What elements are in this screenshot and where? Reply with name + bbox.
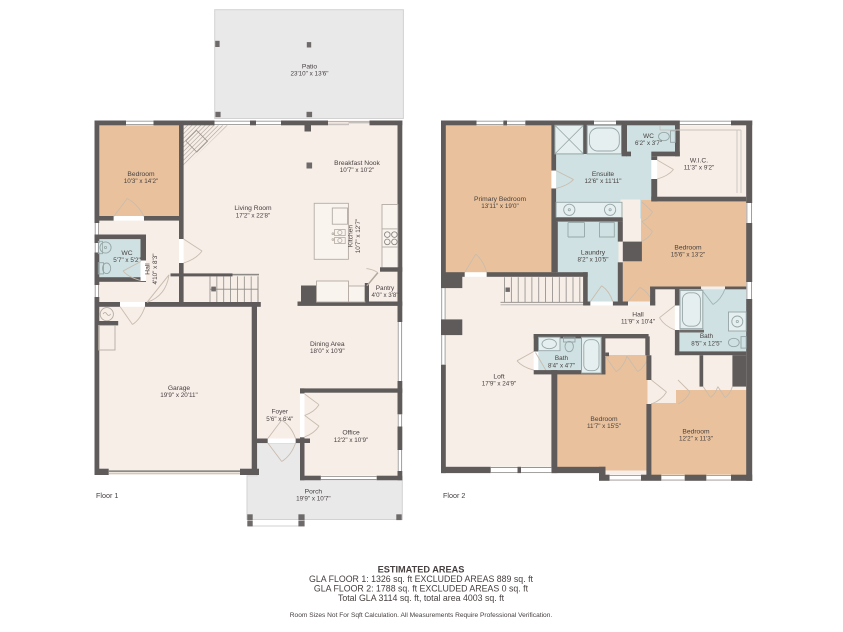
svg-text:Patio: Patio bbox=[302, 63, 318, 70]
svg-text:Dining Area: Dining Area bbox=[310, 341, 345, 348]
svg-text:Bedroom: Bedroom bbox=[590, 416, 618, 423]
svg-text:GLA FLOOR 2: 1788 sq. ft EXCLU: GLA FLOOR 2: 1788 sq. ft EXCLUDED AREAS … bbox=[314, 583, 529, 593]
svg-text:Total GLA 3114 sq. ft, total a: Total GLA 3114 sq. ft, total area 4003 s… bbox=[338, 593, 505, 603]
svg-text:Kitchen: Kitchen bbox=[348, 225, 355, 248]
svg-text:10'7" x 12'7": 10'7" x 12'7" bbox=[355, 219, 362, 254]
svg-text:Bedroom: Bedroom bbox=[674, 244, 702, 251]
svg-text:Foyer: Foyer bbox=[272, 409, 289, 416]
svg-text:11'3" x 9'2": 11'3" x 9'2" bbox=[684, 165, 715, 172]
svg-text:4'10" x 8'3": 4'10" x 8'3" bbox=[152, 253, 159, 284]
svg-text:WC: WC bbox=[643, 133, 654, 140]
svg-text:Living Room: Living Room bbox=[234, 205, 272, 212]
svg-text:12'2" x 10'9": 12'2" x 10'9" bbox=[334, 437, 369, 444]
svg-text:Office: Office bbox=[342, 430, 360, 437]
svg-text:Floor 1: Floor 1 bbox=[96, 491, 118, 500]
svg-text:11'7" x 15'5": 11'7" x 15'5" bbox=[587, 423, 621, 430]
svg-text:5'7" x 5'2": 5'7" x 5'2" bbox=[113, 257, 141, 264]
svg-text:Hall: Hall bbox=[145, 263, 152, 275]
svg-text:8'4" x 4'7": 8'4" x 4'7" bbox=[548, 363, 575, 370]
svg-text:Floor 2: Floor 2 bbox=[443, 491, 465, 500]
svg-text:Ensuite: Ensuite bbox=[592, 171, 615, 178]
svg-text:18'0" x 10'9": 18'0" x 10'9" bbox=[310, 348, 345, 355]
svg-text:8'5" x 12'5": 8'5" x 12'5" bbox=[691, 341, 722, 348]
svg-text:8'2" x 10'5": 8'2" x 10'5" bbox=[577, 257, 608, 264]
svg-text:WC: WC bbox=[121, 250, 132, 257]
svg-text:Hall: Hall bbox=[632, 311, 644, 318]
svg-text:Bedroom: Bedroom bbox=[127, 171, 155, 178]
svg-text:Breakfast Nook: Breakfast Nook bbox=[334, 160, 380, 167]
svg-text:13'11" x 19'0": 13'11" x 19'0" bbox=[481, 203, 519, 210]
svg-text:5'6" x 6'4": 5'6" x 6'4" bbox=[266, 416, 293, 423]
svg-text:23'10" x 13'6": 23'10" x 13'6" bbox=[290, 71, 328, 78]
svg-text:Bath: Bath bbox=[555, 355, 569, 362]
svg-text:W.I.C.: W.I.C. bbox=[690, 157, 708, 164]
svg-text:15'6" x 13'2": 15'6" x 13'2" bbox=[671, 252, 706, 259]
svg-text:4'0" x 3'8": 4'0" x 3'8" bbox=[371, 292, 398, 299]
svg-text:Pantry: Pantry bbox=[376, 285, 395, 292]
svg-text:17'2" x 22'8": 17'2" x 22'8" bbox=[236, 212, 271, 219]
svg-text:Porch: Porch bbox=[305, 488, 323, 495]
svg-text:12'2" x 11'3": 12'2" x 11'3" bbox=[679, 436, 713, 443]
svg-text:Bedroom: Bedroom bbox=[682, 428, 710, 435]
svg-text:Loft: Loft bbox=[493, 373, 504, 380]
svg-text:Laundry: Laundry bbox=[581, 249, 606, 256]
svg-text:19'9" x 10'7": 19'9" x 10'7" bbox=[296, 496, 331, 503]
svg-text:Garage: Garage bbox=[168, 385, 191, 392]
svg-text:12'6" x 11'11": 12'6" x 11'11" bbox=[584, 178, 621, 185]
svg-text:19'9" x 20'11": 19'9" x 20'11" bbox=[160, 392, 198, 399]
svg-text:Primary Bedroom: Primary Bedroom bbox=[474, 196, 526, 203]
svg-text:Room Sizes Not For Sqft Calcul: Room Sizes Not For Sqft Calculation. All… bbox=[290, 612, 553, 619]
svg-text:17'9" x 24'9": 17'9" x 24'9" bbox=[482, 381, 517, 388]
svg-text:Bath: Bath bbox=[700, 333, 714, 340]
svg-text:10'7" x 10'2": 10'7" x 10'2" bbox=[340, 167, 375, 174]
svg-text:6'2" x 3'7": 6'2" x 3'7" bbox=[635, 140, 662, 147]
svg-text:10'3" x 14'2": 10'3" x 14'2" bbox=[124, 178, 159, 185]
svg-text:GLA FLOOR 1: 1326 sq. ft EXCLU: GLA FLOOR 1: 1326 sq. ft EXCLUDED AREAS … bbox=[309, 574, 533, 584]
svg-text:11'9" x 10'4": 11'9" x 10'4" bbox=[621, 319, 655, 326]
